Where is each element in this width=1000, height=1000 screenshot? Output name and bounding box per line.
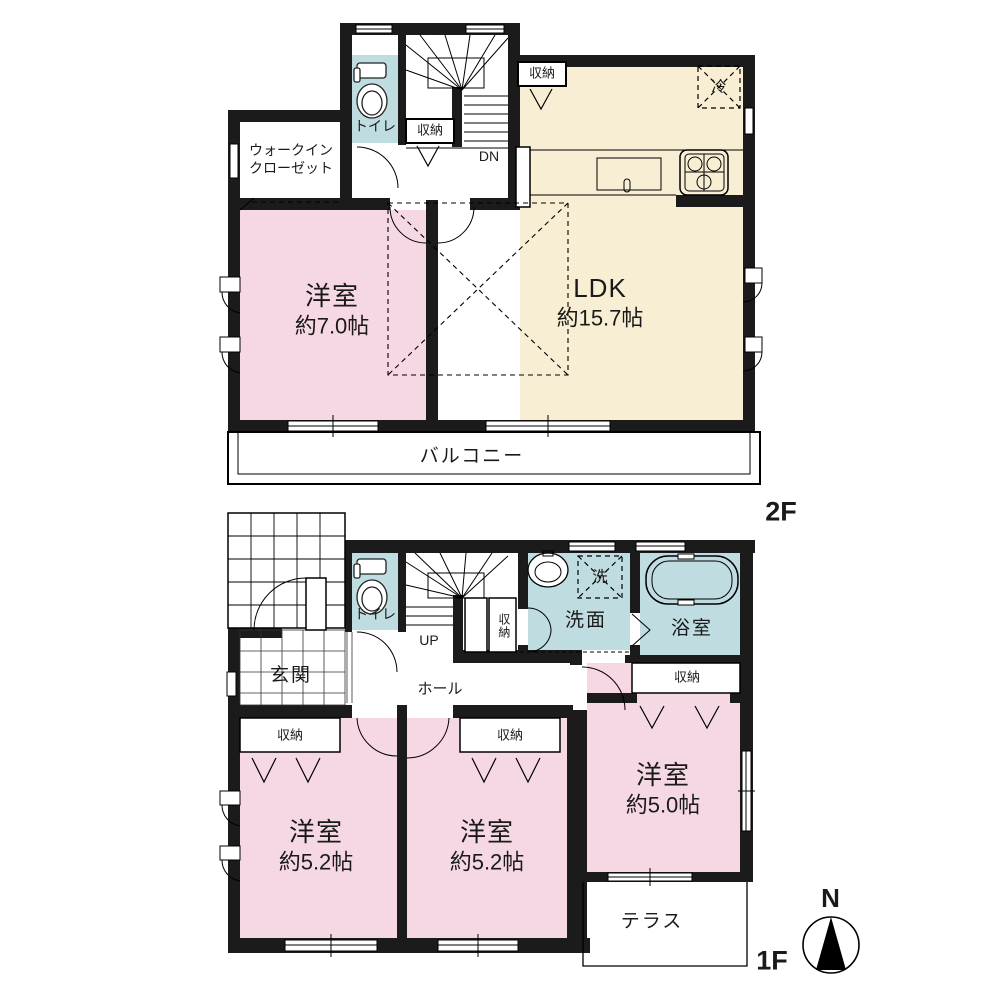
label-1f-bathroom: 浴室 bbox=[671, 618, 713, 640]
washroom-fixtures bbox=[528, 551, 622, 598]
label-2f-dn: DN bbox=[479, 148, 499, 164]
label-2f-bedroom-name: 洋室 bbox=[305, 282, 359, 312]
label-1f-bedroom3-size: 約5.0帖 bbox=[626, 792, 701, 817]
label-1f-up: UP bbox=[419, 632, 438, 648]
label-2f-toilet: トイレ bbox=[354, 118, 396, 134]
label-1f-bath-storage: 収納 bbox=[674, 671, 700, 686]
label-2f-wic-line2: クローゼット bbox=[249, 160, 333, 176]
label-2f-wic-line1: ウォークイン bbox=[249, 142, 333, 158]
label-2f-fridge: 冷 bbox=[711, 78, 726, 95]
label-1f-bedroom2-size: 約5.2帖 bbox=[450, 849, 525, 874]
label-1f-washroom: 洗面 bbox=[565, 610, 607, 632]
label-1f-hall: ホール bbox=[417, 680, 462, 697]
void-dashed-box-2f bbox=[388, 203, 568, 375]
label-1f-bedroom1-size: 約5.2帖 bbox=[279, 849, 354, 874]
label-2f-balcony: バルコニー bbox=[420, 446, 525, 468]
label-1f-toilet: トイレ bbox=[354, 606, 396, 622]
label-2f-ldk-size: 約15.7帖 bbox=[557, 305, 644, 330]
walls-2f bbox=[228, 23, 755, 432]
label-2f-ldk-storage: 収納 bbox=[529, 67, 555, 82]
front-door-icon bbox=[254, 578, 326, 630]
floor-plan-canvas: ウォークイン クローゼット トイレ 収納 DN 収納 冷 LDK 約15.7帖 … bbox=[0, 0, 1000, 1000]
label-1f-bedroom1-name: 洋室 bbox=[289, 818, 343, 848]
label-1f-closet-middle: 収納 bbox=[497, 729, 523, 744]
label-2f-bedroom-size: 約7.0帖 bbox=[295, 313, 370, 338]
label-1f-closet-left: 収納 bbox=[277, 729, 303, 744]
label-2f-ldk-name: LDK bbox=[573, 274, 627, 304]
bathtub-icon bbox=[646, 554, 738, 605]
label-1f-floor: 1F bbox=[756, 945, 788, 976]
label-1f-under-stair-storage: 収納 bbox=[496, 613, 510, 639]
toilet-2f-icon bbox=[354, 63, 387, 118]
label-1f-terrace: テラス bbox=[621, 911, 684, 933]
label-2f-floor: 2F bbox=[765, 496, 797, 527]
windows-2f bbox=[220, 25, 762, 437]
label-1f-bedroom2-name: 洋室 bbox=[460, 818, 514, 848]
label-1f-bedroom3-name: 洋室 bbox=[636, 761, 690, 791]
label-2f-stair-storage: 収納 bbox=[417, 124, 443, 139]
compass-icon bbox=[803, 917, 859, 973]
label-1f-laundry: 洗 bbox=[592, 568, 607, 585]
label-1f-entrance: 玄関 bbox=[270, 665, 312, 687]
label-compass-north: N bbox=[821, 884, 841, 914]
